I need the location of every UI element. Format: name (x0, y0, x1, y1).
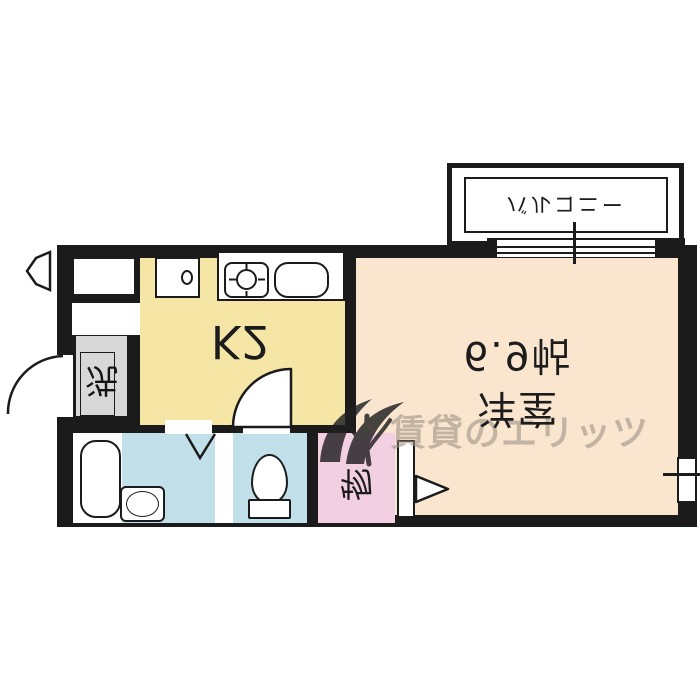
storage-door-triangle-icon (416, 476, 448, 502)
kitchen-label-text: K2 (211, 316, 271, 369)
entrance-door-swing-arc (8, 356, 63, 414)
entrance-arrow-icon (27, 252, 50, 290)
storage-label: 物 (318, 458, 395, 514)
laundry-label: 洗 (75, 352, 128, 414)
room-name: 洋室 (477, 380, 559, 433)
stove-burner-ticks (229, 262, 265, 298)
laundry-label-text: 洗 (85, 359, 118, 407)
floor-plan: バルコニー 賃貸のエリッツ (0, 0, 700, 700)
bath-folding-door-icon (186, 434, 215, 458)
watermark-logo-icon (320, 399, 404, 464)
room-area: 6.9帖 (463, 327, 572, 380)
western-room-label: 洋室 6.9帖 (408, 320, 628, 440)
storage-label-text: 物 (340, 462, 373, 510)
kitchen-label: K2 (196, 312, 286, 372)
kitchen-door-swing (233, 369, 291, 427)
